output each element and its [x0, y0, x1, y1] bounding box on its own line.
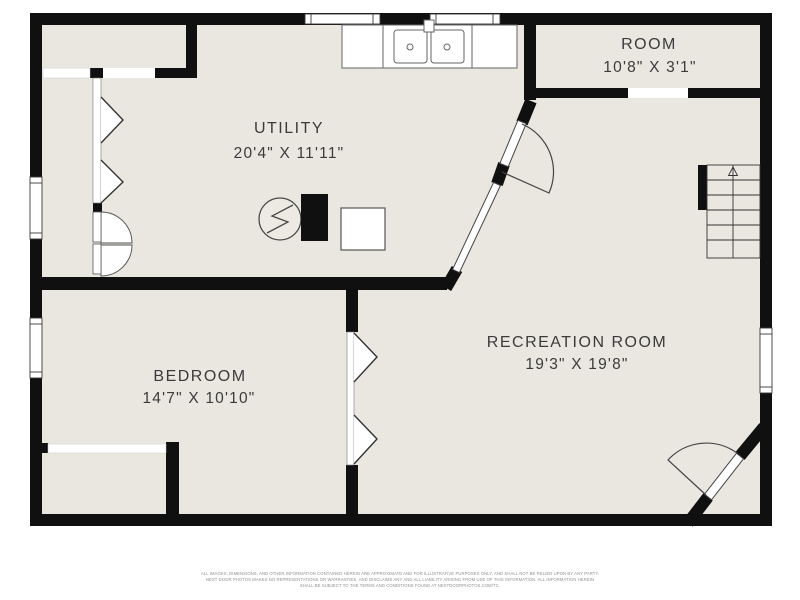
room-dimensions-utility: 20'4" X 11'11" — [234, 145, 345, 162]
room-dimensions-bedroom: 14'7" X 10'10" — [142, 390, 255, 407]
floor-plan: UTILITY 20'4" X 11'11" ROOM 10'8" X 3'1"… — [0, 0, 800, 600]
disclaimer-line: ALL IMAGES, DIMENSIONS, AND OTHER INFORM… — [201, 571, 599, 576]
room-label-utility: UTILITY — [254, 120, 324, 137]
disclaimer-line: SHALL BE SUBJECT TO THE TERMS AND CONDIT… — [300, 583, 500, 588]
appliance-icon — [341, 208, 385, 250]
window-icon — [305, 14, 380, 24]
room-dimensions-recreation: 19'3" X 19'8" — [525, 356, 628, 373]
disclaimer: ALL IMAGES, DIMENSIONS, AND OTHER INFORM… — [201, 571, 599, 588]
water-heater-icon — [259, 198, 301, 240]
room-label-bedroom: BEDROOM — [153, 368, 246, 385]
door-leaf — [93, 244, 101, 274]
floor-plan-page: UTILITY 20'4" X 11'11" ROOM 10'8" X 3'1"… — [0, 0, 800, 600]
disclaimer-line: NEXT DOOR PHOTOS MAKES NO REPRESENTATION… — [206, 577, 594, 582]
window-icon — [760, 328, 772, 393]
room-label-recreation: RECREATION ROOM — [487, 334, 667, 351]
window-icon — [30, 177, 42, 239]
door-leaf — [93, 212, 101, 242]
kitchen-sink-icon — [342, 20, 517, 68]
floor-area — [42, 25, 760, 514]
room-dimensions-room: 10'8" X 3'1" — [603, 59, 696, 76]
room-label-room: ROOM — [621, 36, 677, 53]
furnace-icon — [301, 194, 328, 241]
window-icon — [30, 318, 42, 378]
window-icon — [430, 14, 500, 24]
